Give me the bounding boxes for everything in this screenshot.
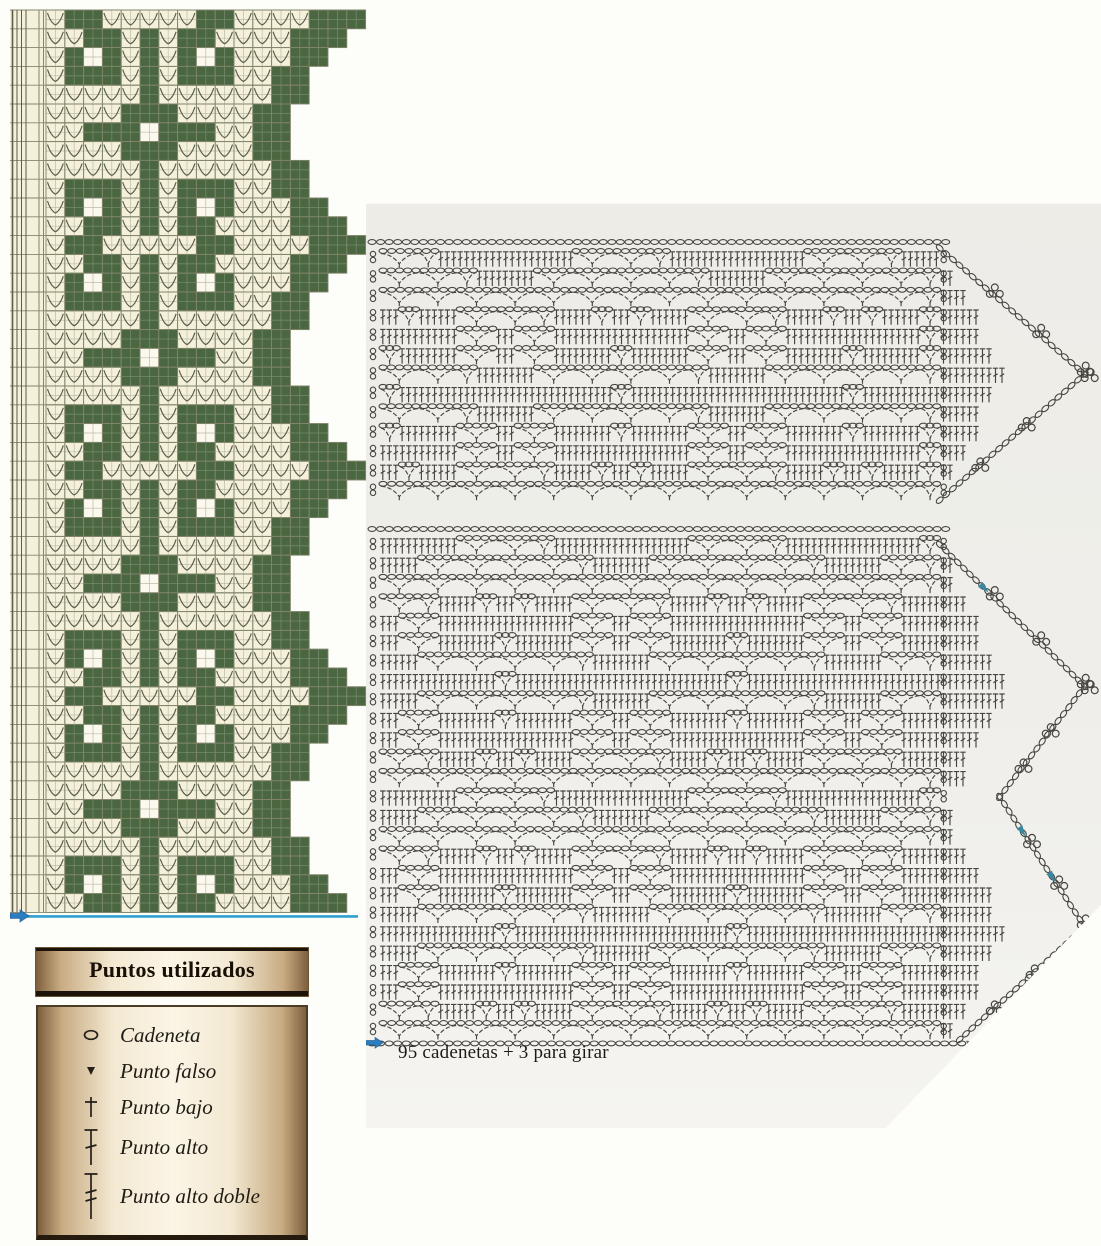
legend-item-cadeneta: Cadeneta <box>38 1017 306 1053</box>
filet-color-chart <box>10 8 368 945</box>
foundation-chain-caption: 95 cadenetas + 3 para girar <box>398 1042 609 1064</box>
symbol-charts-panel <box>366 198 1101 1128</box>
symbol-charts-canvas <box>366 198 1101 1128</box>
legend-title: Puntos utilizados <box>89 957 255 982</box>
legend-body: Cadeneta Punto falso Punto bajo Punto al… <box>36 1005 308 1240</box>
slip-stitch-icon <box>74 1062 108 1080</box>
filet-color-chart-canvas <box>10 8 368 940</box>
legend-item-punto-alto-doble: Punto alto doble <box>38 1169 306 1223</box>
legend-item-label: Cadeneta <box>120 1023 200 1048</box>
legend-title-bar: Puntos utilizados <box>36 948 308 996</box>
stitch-legend: Puntos utilizados Cadeneta Punto falso P… <box>36 948 308 1240</box>
legend-item-label: Punto alto doble <box>120 1184 260 1209</box>
legend-item-punto-bajo: Punto bajo <box>38 1089 306 1125</box>
legend-item-label: Punto alto <box>120 1135 208 1160</box>
treble-crochet-icon <box>74 1171 108 1221</box>
chain-stitch-icon <box>74 1026 108 1044</box>
legend-item-punto-alto: Punto alto <box>38 1125 306 1169</box>
legend-item-label: Punto bajo <box>120 1095 213 1120</box>
single-crochet-icon <box>74 1094 108 1120</box>
double-crochet-icon <box>74 1127 108 1167</box>
legend-item-label: Punto falso <box>120 1059 216 1084</box>
legend-item-punto-falso: Punto falso <box>38 1053 306 1089</box>
